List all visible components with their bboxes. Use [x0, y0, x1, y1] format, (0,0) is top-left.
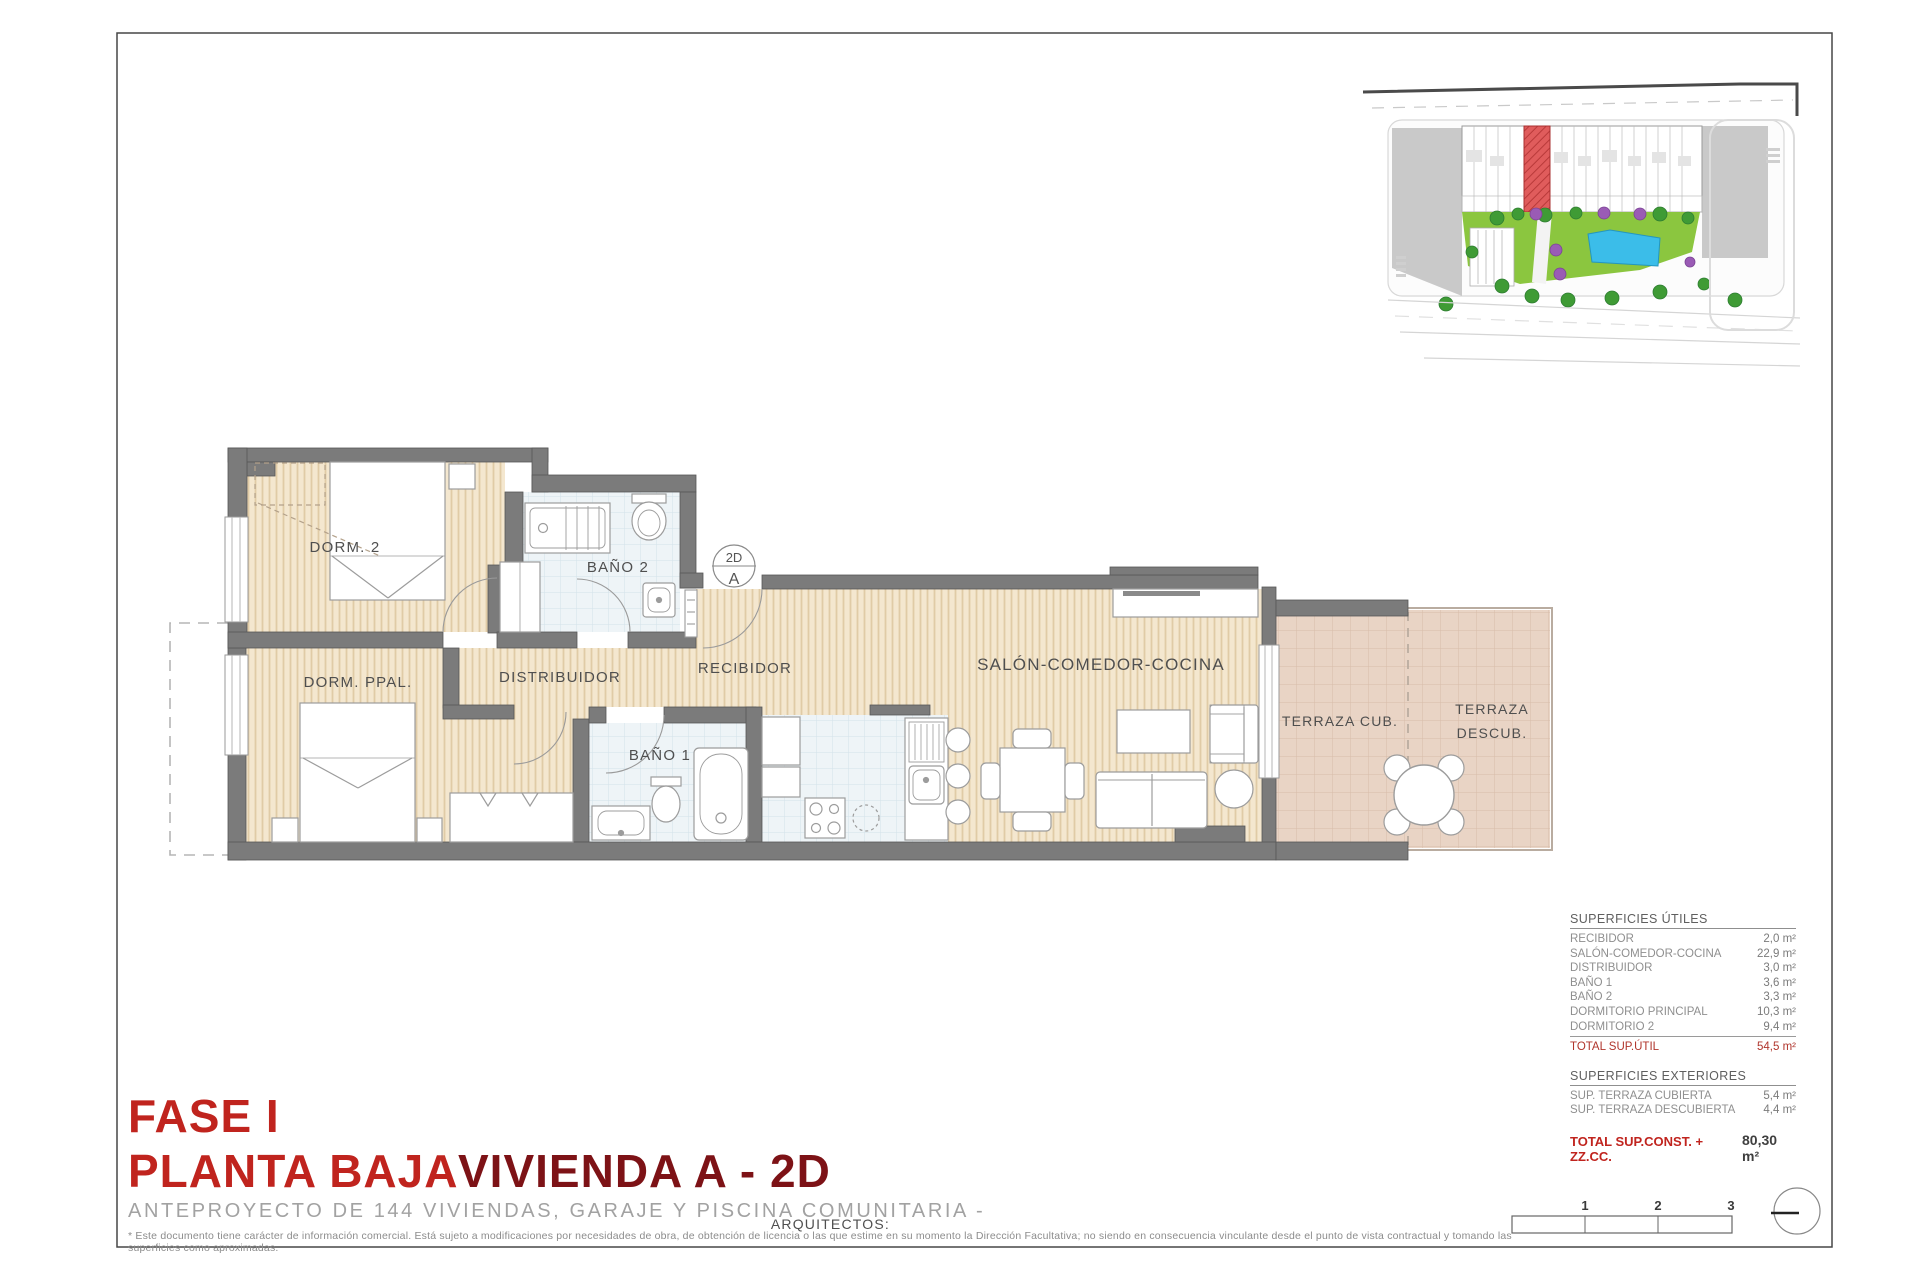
bed-dorm2	[330, 462, 445, 600]
total-construido-row: TOTAL SUP.CONST. + ZZ.CC. 80,30 m²	[1570, 1132, 1796, 1164]
table-row: BAÑO 2 3,3 m²	[1570, 990, 1796, 1005]
site-plan-inset	[1363, 84, 1800, 366]
scale-tick-3: 3	[1727, 1198, 1734, 1213]
bed-dorm-ppal	[300, 703, 415, 842]
side-table	[1215, 770, 1253, 808]
toilet-tank-bano1	[651, 777, 681, 786]
nightstand-left	[272, 818, 298, 842]
total-sup-util-row: TOTAL SUP.ÚTIL 54,5 m²	[1570, 1036, 1796, 1055]
orientation-icon	[1774, 1188, 1820, 1234]
label-dorm2: DORM. 2	[310, 539, 381, 556]
label-distribuidor: DISTRIBUIDOR	[499, 669, 621, 686]
scale-tick-2: 2	[1654, 1198, 1661, 1213]
window-salon-terrace	[1259, 645, 1279, 778]
table-row: DISTRIBUIDOR 3,0 m²	[1570, 961, 1796, 976]
label-dorm-ppal: DORM. PPAL.	[304, 674, 413, 691]
dining-chair	[1013, 729, 1051, 748]
site-building	[1462, 126, 1702, 212]
table-row: BAÑO 1 3,6 m²	[1570, 976, 1796, 991]
dining-table	[1000, 748, 1065, 812]
unit-marker: 2D A	[712, 545, 756, 588]
surfaces-table: SUPERFICIES ÚTILES RECIBIDOR 2,0 m² SALÓ…	[1570, 912, 1796, 1164]
scale-tick-1: 1	[1581, 1198, 1588, 1213]
wardrobe-dorm-ppal	[450, 793, 573, 842]
dining-chair	[981, 763, 1000, 799]
dining-chair	[1013, 812, 1051, 831]
bar-stool	[946, 764, 970, 788]
highlighted-unit	[1524, 126, 1550, 212]
table-row: SUP. TERRAZA DESCUBIERTA 4,4 m²	[1570, 1103, 1796, 1118]
label-terraza-cub: TERRAZA CUB.	[1282, 713, 1398, 729]
bar-stool	[946, 728, 970, 752]
phase-title: FASE I	[128, 1093, 280, 1139]
unit-title: VIVIENDA A - 2D	[458, 1148, 831, 1194]
label-salon: SALÓN-COMEDOR-COCINA	[977, 655, 1225, 674]
nightstand-right	[417, 818, 442, 842]
floor-title: PLANTA BAJA	[128, 1148, 458, 1194]
terrace-table-set	[1384, 755, 1464, 835]
dashed-boundary-line	[170, 623, 228, 855]
dining-chair	[1065, 763, 1084, 799]
bar-stool	[946, 800, 970, 824]
toilet-bano2	[632, 502, 666, 540]
label-recibidor: RECIBIDOR	[698, 660, 792, 677]
svg-text:DESCUB.: DESCUB.	[1457, 725, 1528, 741]
site-pavilion	[1470, 228, 1514, 286]
sink-counter-bano2	[525, 503, 610, 553]
table-row: SUP. TERRAZA CUBIERTA 5,4 m²	[1570, 1089, 1796, 1104]
scale-bar: 1 2 3	[1512, 1188, 1820, 1234]
apartment-floorplan: DORM. 2 BAÑO 2 DORM. PPAL. DISTRIBUIDOR …	[170, 448, 1552, 860]
surfaces-exteriores-header: SUPERFICIES EXTERIORES	[1570, 1069, 1796, 1086]
toilet-bano1	[652, 786, 680, 822]
coffee-table	[1117, 710, 1190, 753]
unit-marker-type: 2D	[726, 550, 743, 565]
kitchen-cabinet	[762, 767, 800, 797]
window-dorm2	[225, 517, 248, 622]
site-gray-right	[1702, 126, 1768, 258]
table-row: RECIBIDOR 2,0 m²	[1570, 932, 1796, 947]
table-row: DORMITORIO PRINCIPAL 10,3 m²	[1570, 1005, 1796, 1020]
label-terraza-descub: TERRAZA	[1455, 701, 1529, 717]
label-bano1: BAÑO 1	[629, 747, 691, 764]
drawing-sheet: DORM. 2 BAÑO 2 DORM. PPAL. DISTRIBUIDOR …	[0, 0, 1920, 1280]
window-dorm-ppal	[225, 655, 248, 755]
entrance-door-leaf	[685, 590, 697, 637]
kitchen-cabinet-tall	[762, 717, 800, 765]
disclaimer-text: * Este documento tiene carácter de infor…	[128, 1230, 1518, 1254]
terrace-table	[1394, 765, 1454, 825]
site-road-edge	[1363, 84, 1797, 116]
table-row: DORMITORIO 2 9,4 m²	[1570, 1020, 1796, 1035]
unit-marker-letter: A	[729, 571, 740, 588]
bathtub	[694, 748, 748, 840]
table-row: SALÓN-COMEDOR-COCINA 22,9 m²	[1570, 947, 1796, 962]
nightstand-dorm2	[449, 464, 475, 489]
floor-terraza-cubierta	[1276, 616, 1408, 842]
label-bano2: BAÑO 2	[587, 559, 649, 576]
surfaces-utiles-header: SUPERFICIES ÚTILES	[1570, 912, 1796, 929]
